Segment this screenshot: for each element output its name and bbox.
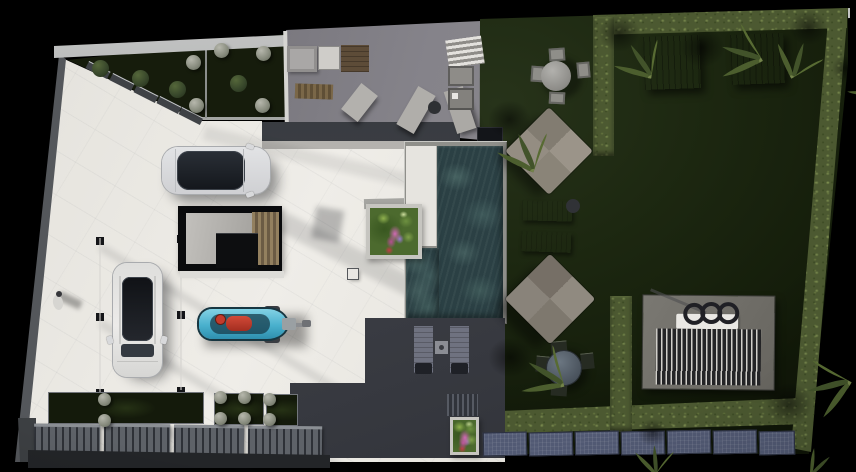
person <box>48 286 88 316</box>
round-shrub <box>255 98 270 113</box>
round-shrub <box>214 43 229 58</box>
bed-shrub <box>98 414 111 427</box>
sun-deck-right <box>730 33 785 85</box>
hedge-mid-upper <box>593 17 614 156</box>
deck-grate <box>447 394 478 416</box>
flower-patch <box>366 204 422 259</box>
sedan-glass-roof <box>177 151 245 190</box>
jetski-seat <box>226 316 252 331</box>
side-table <box>566 199 580 213</box>
flower-planter <box>450 417 479 455</box>
blue-fence-panel <box>759 431 795 456</box>
rooftop-side-table <box>428 101 441 114</box>
poolside-lounger <box>521 231 572 253</box>
round-shrub <box>256 46 271 61</box>
palm-tree <box>810 418 856 472</box>
poolside-lounger <box>522 200 573 221</box>
green-shrub <box>92 60 109 77</box>
staircase-shaft <box>216 233 258 268</box>
bar-stool <box>717 302 739 324</box>
suv-windshield <box>121 344 154 357</box>
blue-fence-panel <box>483 432 527 457</box>
pool-water <box>437 146 503 318</box>
blue-fence-panel <box>575 431 619 456</box>
rooftop-daybed <box>341 45 369 72</box>
blue-fence-panel <box>667 430 711 455</box>
chair <box>551 383 568 396</box>
bed-shrub <box>263 413 276 426</box>
jetski-handlebar <box>216 315 225 324</box>
hedge-mid-lower <box>610 296 632 432</box>
suv-glass-roof <box>122 277 153 341</box>
dining-set-south <box>534 338 598 402</box>
round-shrub <box>186 55 201 70</box>
chair <box>576 61 590 78</box>
roof-post <box>348 269 358 279</box>
green-shrub <box>230 75 247 92</box>
skylight <box>478 128 502 142</box>
bed-shrub <box>238 391 251 404</box>
green-shrub <box>169 81 186 98</box>
villa-aerial-render <box>0 0 856 472</box>
blue-fence-panel <box>529 432 573 457</box>
rooftop-steps <box>445 36 485 69</box>
sink-dot <box>452 93 458 99</box>
deck-table <box>435 341 448 354</box>
lounger-cushion <box>451 363 468 374</box>
planting-bed-edge <box>196 117 288 120</box>
green-shrub <box>132 70 149 87</box>
bed-shrub <box>263 393 276 406</box>
planting-bed-divider <box>205 44 207 118</box>
rooftop-sofa <box>287 46 317 72</box>
pergola-slat-roof <box>656 329 761 386</box>
wood-lounger <box>295 83 334 99</box>
bed-shrub <box>98 393 111 406</box>
bed-shrub <box>214 391 227 404</box>
dining-set-north <box>528 44 590 106</box>
blue-fence-panel <box>621 431 665 456</box>
rooftop-counter <box>448 66 474 86</box>
round-shrub <box>189 98 204 113</box>
trailer-hitch <box>302 320 311 327</box>
chair <box>580 352 595 369</box>
lounger-cushion <box>415 363 432 374</box>
cast-shadow <box>311 206 344 242</box>
bed-shrub <box>238 412 251 425</box>
carport-beam <box>99 238 101 392</box>
staircase-sill <box>180 271 284 278</box>
rooftop-table <box>319 47 339 69</box>
rooftop-counter <box>448 88 474 110</box>
planting-bed-bottom <box>48 392 204 424</box>
blue-fence-panel <box>713 430 757 455</box>
round-table <box>547 351 581 385</box>
jetski-rear-step <box>282 318 296 330</box>
pergola-outdoor-kitchen <box>643 295 775 389</box>
chair <box>549 47 566 61</box>
bed-shrub <box>214 412 227 425</box>
chair <box>549 92 566 105</box>
round-table <box>541 61 571 91</box>
sun-deck-left <box>643 35 701 90</box>
